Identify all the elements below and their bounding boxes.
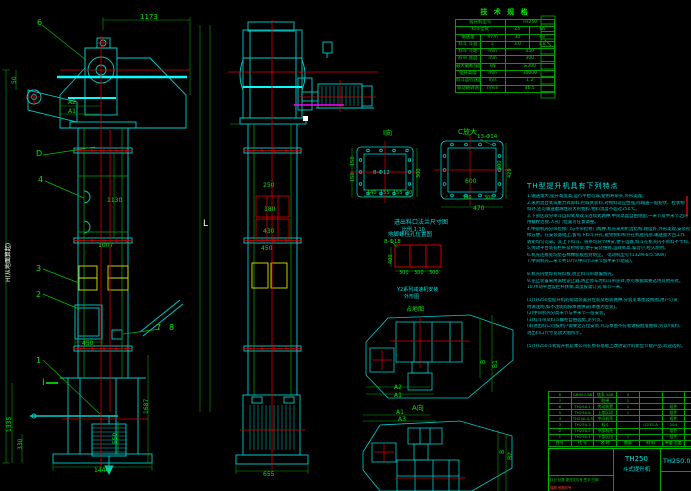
dim-label: 地脚螺栓孔位置图 bbox=[388, 233, 432, 239]
footprint-view-2-red bbox=[374, 444, 465, 478]
dim-label: 155 bbox=[380, 191, 390, 196]
footprint-view-1-dims bbox=[366, 315, 492, 394]
product-cell: TH250 斗式提升机 bbox=[613, 449, 661, 491]
dim-label: I bbox=[42, 379, 45, 388]
table-cell: 30000 bbox=[505, 71, 555, 78]
dim-label: 250 bbox=[263, 183, 274, 189]
table-cell: 料斗运行速度 bbox=[456, 78, 481, 85]
features-text-block: TH型提升机具有下列特点 1.输送量大,提升高度高,运行平稳可靠,使用寿命长,外… bbox=[527, 181, 691, 350]
table-cell: TH250 bbox=[505, 20, 555, 27]
dim-label: A2 bbox=[68, 100, 76, 106]
footprint-view-2 bbox=[363, 421, 512, 491]
dim-label: 180 bbox=[264, 207, 275, 213]
dim-label: 1444 bbox=[94, 468, 109, 474]
side-view-green-structure bbox=[254, 124, 291, 395]
table-cell: 最大破断强度 bbox=[456, 63, 481, 70]
dim-label: 3 bbox=[36, 265, 41, 273]
tech-spec-table: 技 术 规 格 提升机型号TH250料斗型式ZhSh输送量m³/h3048料斗 … bbox=[455, 7, 555, 93]
dim-label: 8-Φ12 bbox=[373, 171, 390, 177]
dim-label: 1173 bbox=[140, 14, 158, 21]
table-cell: 料斗型式 bbox=[456, 27, 506, 34]
dim-label: 1 bbox=[36, 357, 41, 365]
table-cell: m/s bbox=[480, 78, 505, 85]
trace-note: 描图 底图总号 bbox=[550, 485, 571, 490]
table-cell: kN bbox=[480, 63, 505, 70]
table-cell: 1.2 bbox=[505, 78, 555, 85]
dim-label: 430 bbox=[263, 229, 274, 235]
table-cell: 备注 bbox=[685, 440, 691, 446]
dim-label: 450 bbox=[82, 341, 93, 347]
table-cell: 代 号 bbox=[571, 440, 594, 446]
dim-label: 420 bbox=[508, 168, 513, 178]
table-cell: 3.0 bbox=[505, 41, 530, 48]
dim-label: 30 bbox=[406, 191, 412, 196]
front-elevation-view bbox=[27, 38, 187, 474]
feature-line: (5)TH250斗式提升机是本公司在原有基础上改进设计的新型节能产品,欢迎选购。 bbox=[527, 344, 691, 351]
dim-label: 600 bbox=[465, 179, 476, 185]
table-cell: mm bbox=[480, 49, 505, 56]
dim-label: 外形图 bbox=[404, 295, 419, 300]
footprint-view-2-dims bbox=[363, 415, 506, 491]
dim-label: 13-Φ14 bbox=[477, 135, 497, 141]
product-name: 斗式提升机 bbox=[613, 465, 660, 473]
dim-label: 4 bbox=[38, 176, 43, 184]
side-elevation-view bbox=[236, 22, 374, 464]
dim-label: 470 bbox=[473, 206, 484, 212]
dim-label: Y2系列减速机安装 bbox=[397, 288, 438, 293]
dim-label: A向 bbox=[412, 405, 424, 412]
table-cell: L bbox=[480, 41, 505, 48]
table-cell: 数量 bbox=[617, 440, 640, 446]
table-cell: r/min bbox=[480, 85, 505, 92]
dim-label: 6 bbox=[37, 19, 42, 27]
table-cell: mm bbox=[480, 71, 505, 78]
dim-label: 7 bbox=[156, 324, 161, 332]
dim-label: B bbox=[481, 360, 487, 364]
table-cell: 名 称 bbox=[594, 440, 617, 446]
dim-label: A2 bbox=[394, 385, 402, 391]
table-cell: 30 bbox=[505, 34, 530, 41]
dim-label: B bbox=[500, 450, 506, 454]
dim-label: 300 bbox=[414, 271, 424, 276]
table-cell: 300 bbox=[505, 56, 555, 63]
dim-label: A1 bbox=[394, 393, 402, 399]
product-model: TH250 bbox=[613, 455, 660, 463]
dim-label: 8 bbox=[169, 324, 174, 332]
table-cell: 件号 bbox=[549, 440, 572, 446]
dim-label: D bbox=[36, 150, 42, 158]
table-cell: 提升机型号 bbox=[456, 20, 506, 27]
table-cell: 450 bbox=[505, 49, 555, 56]
dim-label: I向 bbox=[383, 130, 392, 137]
table-cell: 料斗 斗距 bbox=[456, 49, 481, 56]
dim-label: 300 bbox=[417, 168, 422, 178]
dim-label: 300 bbox=[429, 271, 439, 276]
tech-table-title: 技 术 规 格 bbox=[455, 7, 555, 17]
dim-label: 155 bbox=[393, 191, 403, 196]
feature-line: 修方便。在安装基础上,留有下料斗开孔,避免物料积存在机座内部,输送量大且工作 bbox=[527, 233, 691, 240]
dim-label: 1007 bbox=[98, 243, 113, 249]
dim-label: 150 bbox=[351, 156, 356, 166]
table-cell: 1.8 bbox=[530, 41, 555, 48]
dim-label: 450 bbox=[261, 246, 272, 252]
features-title: TH型提升机具有下列特点 bbox=[527, 181, 691, 191]
table-cell: 46.5 bbox=[505, 85, 555, 92]
title-block-divider bbox=[660, 471, 691, 472]
dim-label: 50 bbox=[12, 76, 18, 84]
dim-label: 2 bbox=[36, 291, 41, 299]
dim-label: 550 bbox=[113, 433, 119, 444]
table-cell: 输送量 bbox=[456, 34, 481, 41]
dim-label: 150 bbox=[351, 172, 356, 182]
anchor-bolt-detail bbox=[395, 245, 441, 267]
table-cell: Zh bbox=[505, 27, 530, 34]
drawing-number: TH250.0 bbox=[663, 457, 691, 465]
drawing-no-cell: TH250.0 bbox=[660, 449, 691, 491]
table-cell: 48 bbox=[530, 34, 555, 41]
dim-label: A3 bbox=[398, 417, 406, 423]
feature-line: (4)进出料口可按用户需要之方位安装,凡与本图不符者请按批准图样,另以Y资料, bbox=[527, 324, 691, 331]
dim-label: 占地图 bbox=[406, 307, 424, 313]
footprint-view-1 bbox=[366, 315, 513, 398]
title-block: 标记 处数 更改文件号 签字 日期 描图 底图总号 TH250 斗式提升机 TH… bbox=[548, 448, 691, 491]
dim-label: A1 bbox=[68, 109, 76, 115]
table-cell: 料斗 斗容 bbox=[456, 41, 481, 48]
dim-label: 400 bbox=[389, 254, 394, 264]
feature-line: 5.传动平台装有栏杆及检修架,便于安装维修,运转率高,噪音小,经久耐用。 bbox=[527, 246, 691, 253]
dim-label: 300 bbox=[498, 160, 503, 170]
dim-label: 1130 bbox=[107, 198, 122, 204]
dim-label: 300 bbox=[484, 196, 494, 201]
table-cell: 胶带 宽度 bbox=[456, 56, 481, 63]
dim-label: 330 bbox=[18, 439, 24, 450]
table-cell: mm bbox=[480, 56, 505, 63]
dim-label: 8-Φ18 bbox=[384, 240, 401, 246]
signature-grid bbox=[549, 449, 613, 476]
dim-label: 300 bbox=[399, 271, 409, 276]
dim-label: 1687 bbox=[144, 399, 150, 414]
dim-label: 390 bbox=[462, 196, 472, 201]
feature-lines: 1.输送量大,提升高度高,运行平稳可靠,使用寿命长,外形美观。2.采用混合式或重… bbox=[527, 194, 691, 350]
revision-row-labels: 标记 处数 更改文件号 签字 日期 bbox=[550, 477, 598, 482]
table-cell: 单重 总重 bbox=[662, 440, 685, 446]
table-cell: Sh bbox=[530, 27, 555, 34]
table-cell: 提升高度 bbox=[456, 71, 481, 78]
bom-body: 8GB907-86链条 20B47胶带16TH250.7传动装置1组件5TH25… bbox=[549, 392, 691, 447]
cad-drawing-canvas[interactable]: 1173650A2A1D41130100732450781IH(从地面算起)13… bbox=[0, 0, 691, 491]
dim-label: 1335 bbox=[7, 417, 13, 432]
table-cell: 材 料 bbox=[639, 440, 662, 446]
dim-label: C放大 bbox=[458, 129, 477, 136]
dim-label: L bbox=[203, 220, 208, 229]
dim-label: 140 bbox=[367, 191, 377, 196]
bom-table: 8GB907-86链条 20B47胶带16TH250.7传动装置1组件5TH25… bbox=[548, 391, 691, 447]
dim-label: H(从地面算起) bbox=[6, 243, 12, 282]
table-cell: ≥300 bbox=[505, 63, 555, 70]
table-cell: m³/h bbox=[480, 34, 505, 41]
dim-label: 655 bbox=[263, 472, 274, 478]
feature-line: (1)TH250型提升机的驱动装置分左装及右装两种,分别见本图及附图,用户订货 bbox=[527, 298, 691, 305]
dim-label: B2 bbox=[508, 452, 514, 460]
table-cell: 驱动轴转速 bbox=[456, 85, 481, 92]
signature-area: 标记 处数 更改文件号 签字 日期 描图 底图总号 bbox=[549, 449, 614, 491]
dim-label: 进出料口法兰尺寸图 bbox=[394, 220, 448, 226]
tech-table-body: 提升机型号TH250料斗型式ZhSh输送量m³/h3048料斗 斗容L3.01.… bbox=[456, 20, 555, 93]
dim-label: B1 bbox=[493, 360, 499, 368]
